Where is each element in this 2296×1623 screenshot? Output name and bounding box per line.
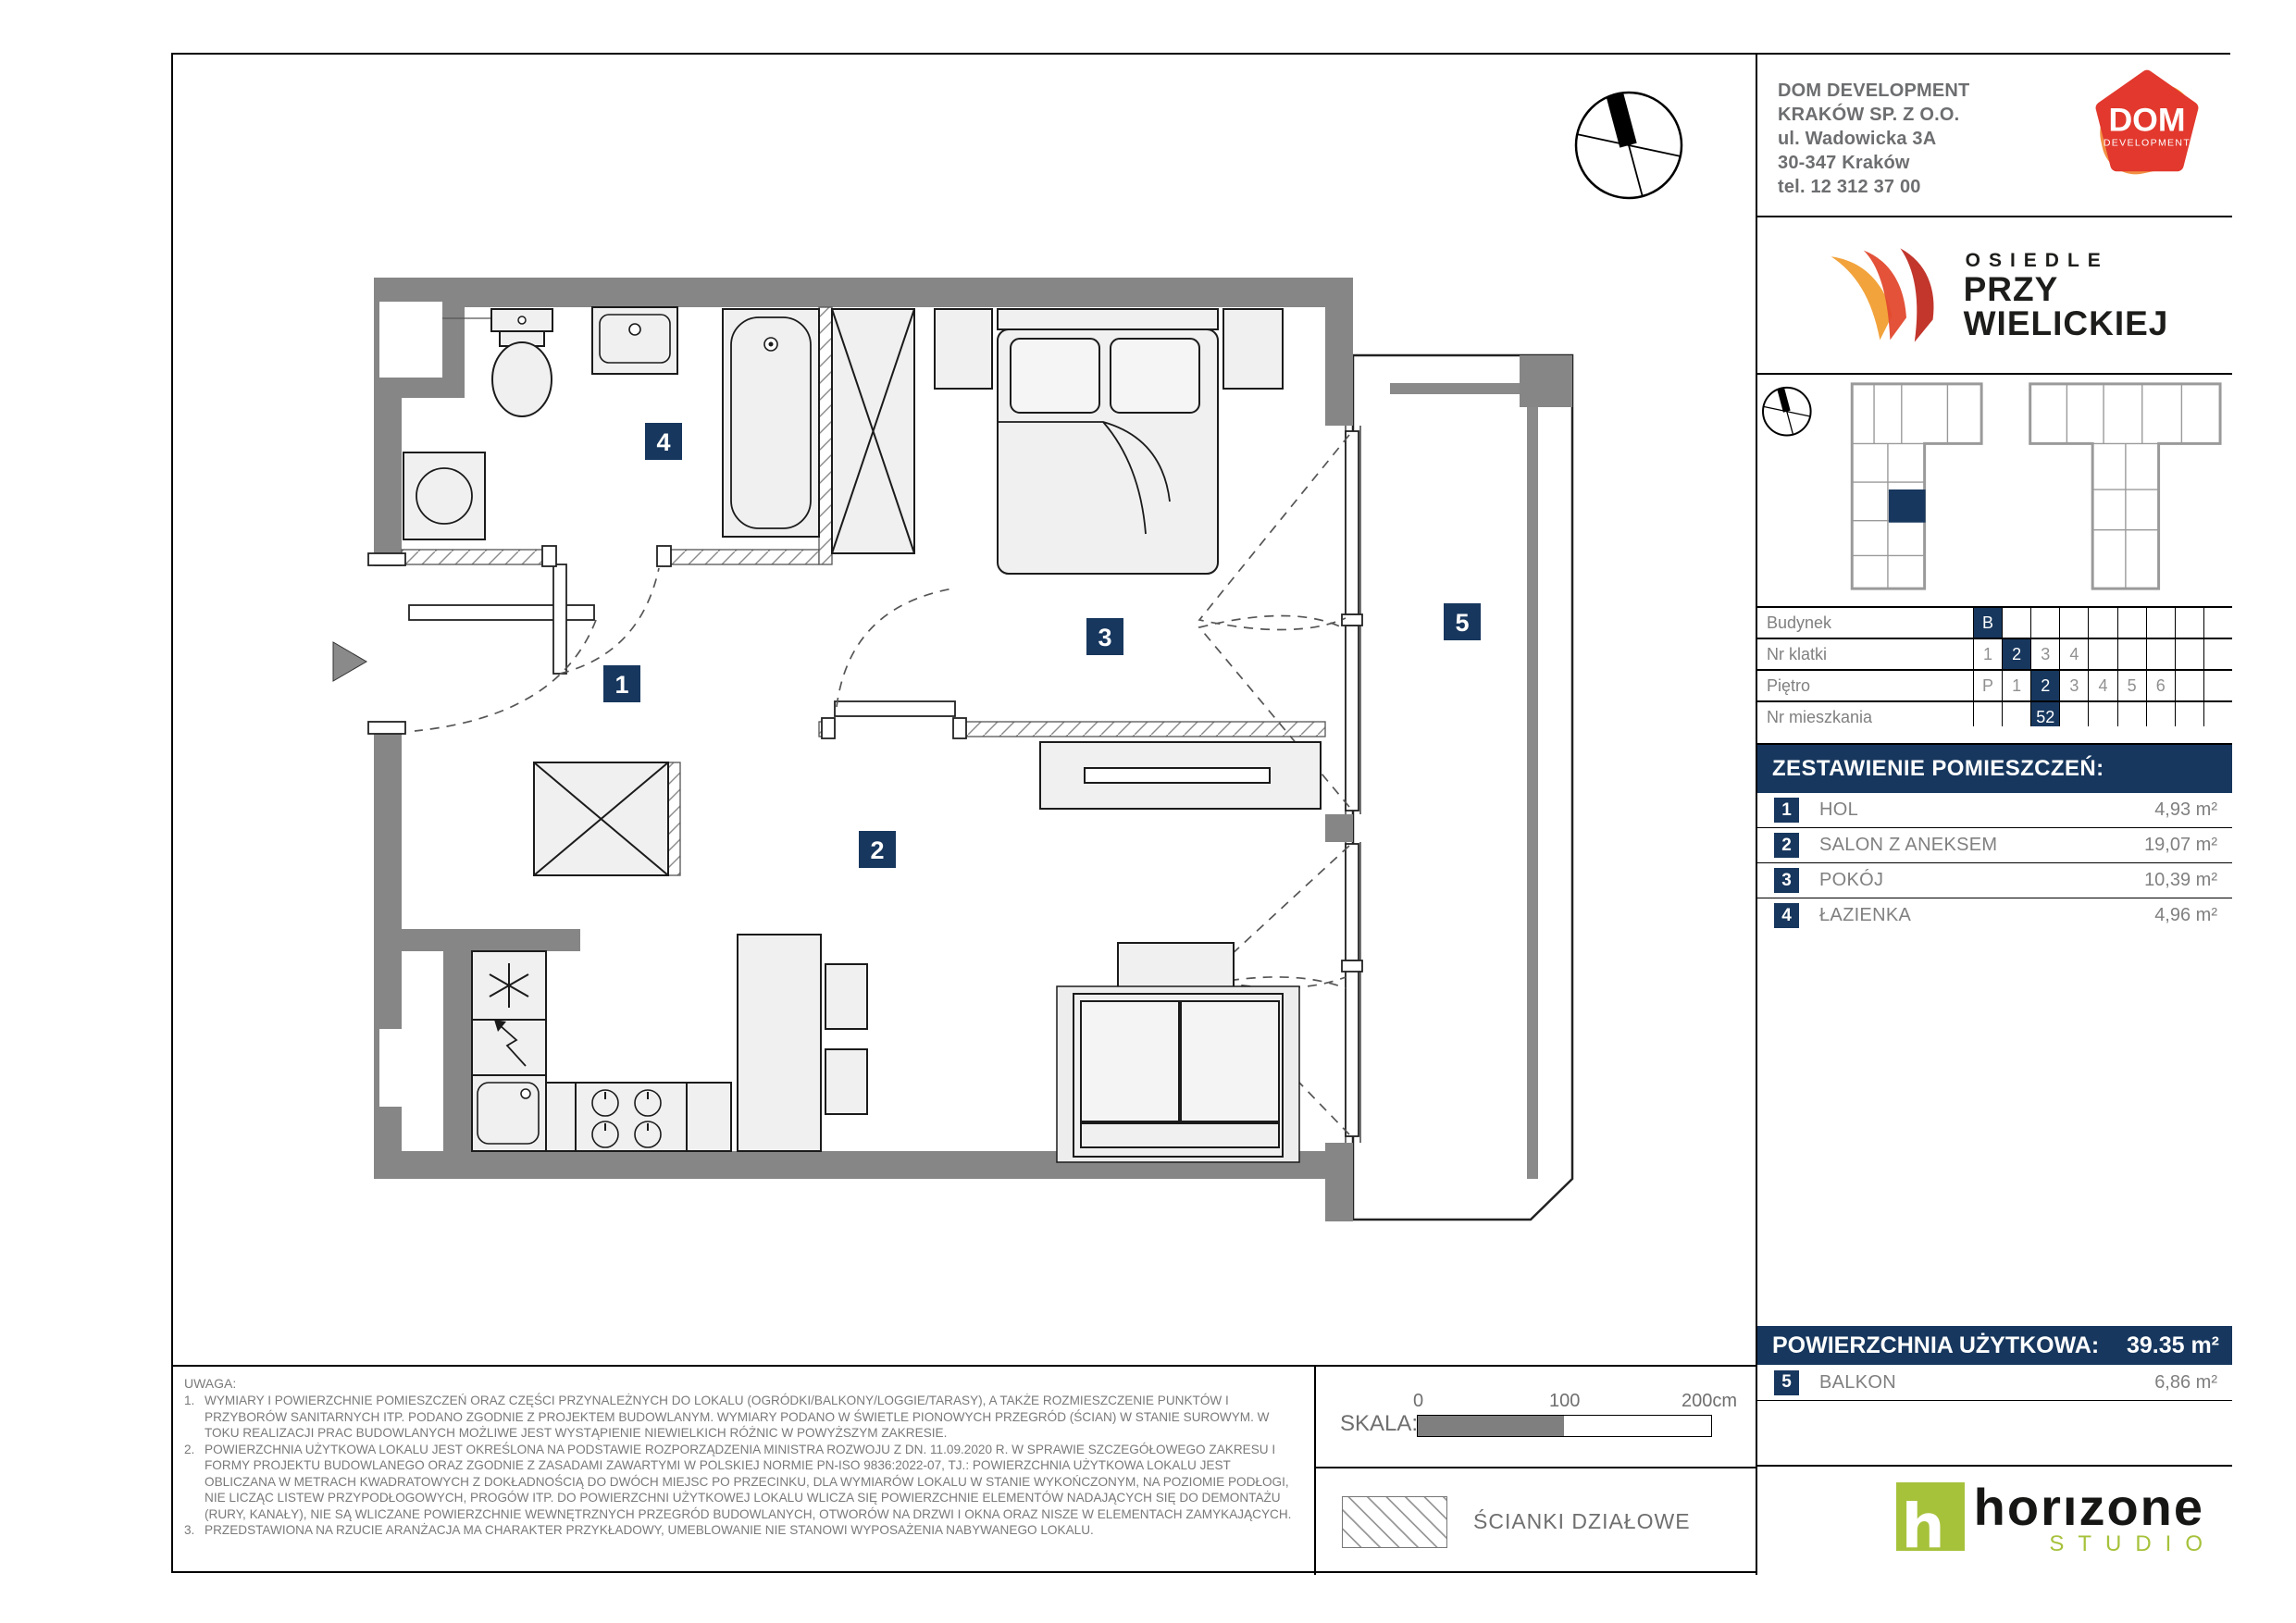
cell — [2030, 608, 2059, 638]
building-location-map — [1757, 375, 2232, 608]
svg-text:DEVELOPMENT: DEVELOPMENT — [2104, 137, 2191, 148]
cell — [2203, 671, 2232, 700]
cell: 1 — [2002, 671, 2030, 700]
wardrobe-bathroom — [832, 309, 914, 553]
estate-line2: PRZY — [1964, 272, 2169, 306]
room-number-badge: 1 — [1774, 798, 1799, 823]
cell: 4 — [2059, 639, 2088, 669]
rooms-list: 1 HOL 4,93 m² 2 SALON Z ANEKSEM 19,07 m²… — [1757, 793, 2232, 930]
estate-logo-text: OSIEDLE PRZY WIELICKIEJ — [1964, 250, 2169, 341]
scale-tick-100: 100 — [1549, 1391, 1580, 1412]
scale-bar-empty — [1564, 1415, 1712, 1437]
cell: 1 — [1973, 639, 2002, 669]
studio-name: horızone — [1974, 1483, 2204, 1531]
legend-box: ŚCIANKI DZIAŁOWE — [1314, 1467, 1756, 1575]
note-text: WYMIARY I POWIERZCHNIE POMIESZCZEŃ ORAZ … — [205, 1393, 1299, 1442]
bathtub — [723, 309, 819, 537]
location-table: Budynek B Nr klatki 1 2 3 4 — [1757, 608, 2232, 726]
kitchen-fridge — [472, 951, 546, 1020]
room-name: ŁAZIENKA — [1819, 905, 2154, 926]
room-row-hol: 1 HOL 4,93 m² — [1757, 793, 2232, 828]
cell: 3 — [2030, 639, 2059, 669]
badge-balkon: 5 — [1455, 609, 1469, 637]
row-label: Piętro — [1757, 671, 1973, 700]
partition-hatch-swatch — [1342, 1496, 1447, 1548]
cell — [2002, 608, 2030, 638]
partition-legend-label: ŚCIANKI DZIAŁOWE — [1473, 1509, 1691, 1534]
row-label: Nr klatki — [1757, 639, 1973, 669]
cell — [2088, 639, 2116, 669]
cell — [2175, 608, 2203, 638]
bed — [935, 309, 1283, 574]
table-row-klatka: Nr klatki 1 2 3 4 — [1757, 639, 2232, 671]
sheet-border: 1 2 3 4 5 DOM DEVELOPMENT KRAKÓW SP. Z O… — [171, 53, 2230, 1573]
note-number: 1. — [184, 1393, 205, 1442]
scale-bar-box: SKALA: 0 100 200cm — [1314, 1365, 1756, 1467]
cell: 4 — [2088, 671, 2116, 700]
scale-label: SKALA: — [1340, 1411, 1418, 1437]
washing-machine — [403, 452, 485, 539]
room-name: HOL — [1819, 799, 2154, 821]
note-item: 2. POWIERZCHNIA UŻYTKOWA LOKALU JEST OKR… — [184, 1442, 1299, 1523]
cell — [2175, 671, 2203, 700]
spacer — [1757, 726, 2232, 745]
svg-text:DOM: DOM — [2108, 102, 2185, 139]
studio-subtitle: STUDIO — [2049, 1531, 2216, 1557]
cell — [2088, 608, 2116, 638]
north-compass-icon — [1576, 93, 1682, 199]
room-area: 6,86 m² — [2154, 1372, 2232, 1394]
cell — [2117, 639, 2146, 669]
estate-line1: OSIEDLE — [1966, 250, 2169, 272]
note-number: 3. — [184, 1522, 205, 1539]
scale-bar-filled — [1417, 1415, 1566, 1437]
cell — [2117, 608, 2146, 638]
wardrobe-hall — [534, 762, 668, 875]
note-text: POWIERZCHNIA UŻYTKOWA LOKALU JEST OKREŚL… — [205, 1442, 1299, 1523]
cell — [2175, 639, 2203, 669]
note-number: 2. — [184, 1442, 205, 1523]
estate-line3: WIELICKIEJ — [1964, 306, 2169, 341]
kitchen-sink — [472, 1075, 546, 1151]
room-area: 4,96 m² — [2154, 905, 2232, 926]
table-row-budynek: Budynek B — [1757, 608, 2232, 639]
dom-development-logo: DOM DEVELOPMENT — [2086, 68, 2208, 190]
note-text: PRZEDSTAWIONA NA RZUCIE ARANŻACJA MA CHA… — [205, 1522, 1299, 1539]
cell — [2146, 639, 2175, 669]
mini-compass-icon — [1763, 388, 1811, 436]
cell: 6 — [2146, 671, 2175, 700]
cell: 2 — [2030, 671, 2059, 700]
balcony — [1353, 355, 1572, 1220]
chair — [825, 1049, 867, 1114]
usable-area-value: 39.35 m² — [2127, 1332, 2232, 1359]
cell: 5 — [2117, 671, 2146, 700]
wall-niche-bottom — [379, 1029, 435, 1107]
cell: 2 — [2002, 639, 2030, 669]
estate-logo-mark — [1821, 244, 1951, 346]
empty-area — [1757, 1401, 2232, 1467]
cell: P — [1973, 671, 2002, 700]
cell — [2203, 639, 2232, 669]
balcony-row: 5 BALKON 6,86 m² — [1757, 1365, 2232, 1401]
rooms-header: ZESTAWIENIE POMIESZCZEŃ: — [1757, 745, 2232, 793]
horizone-logo-icon: h — [1896, 1482, 1965, 1551]
room-number-badge: 2 — [1774, 833, 1799, 858]
room-row-lazienka: 4 ŁAZIENKA 4,96 m² — [1757, 898, 2232, 934]
scale-tick-200: 200cm — [1682, 1391, 1737, 1412]
cell: 3 — [2059, 671, 2088, 700]
cell — [2146, 608, 2175, 638]
floorplan-sheet: { "company": { "lines": ["DOM DEVELOPMEN… — [0, 0, 2296, 1623]
washbasin — [592, 307, 677, 374]
room-number-badge: 4 — [1774, 903, 1799, 928]
chair — [825, 964, 867, 1029]
cell: B — [1973, 608, 2002, 638]
room-number-badge: 3 — [1774, 868, 1799, 893]
note-item: 3. PRZEDSTAWIONA NA RZUCIE ARANŻACJA MA … — [184, 1522, 1299, 1539]
room-area: 19,07 m² — [2144, 835, 2232, 856]
kitchen-island — [738, 935, 821, 1151]
cell — [2059, 608, 2088, 638]
usable-area-band: POWIERZCHNIA UŻYTKOWA: 39.35 m² — [1757, 1326, 2232, 1365]
badge-pokoj: 3 — [1098, 624, 1111, 651]
room-name: POKÓJ — [1819, 870, 2144, 891]
sofa — [1057, 986, 1299, 1162]
room-row-salon: 2 SALON Z ANEKSEM 19,07 m² — [1757, 828, 2232, 863]
studio-logo: h horızone STUDIO — [1757, 1467, 2232, 1573]
apartment-highlight — [1889, 489, 1926, 523]
badge-salon: 2 — [870, 836, 884, 864]
stove — [576, 1083, 687, 1151]
wall-niche-top — [379, 302, 442, 378]
kitchen-appliance — [472, 1020, 546, 1075]
room-name: BALKON — [1819, 1372, 2154, 1394]
row-label: Budynek — [1757, 608, 1973, 638]
notes-block: UWAGA: 1. WYMIARY I POWIERZCHNIE POMIESZ… — [173, 1365, 1314, 1575]
scale-tick-0: 0 — [1413, 1391, 1423, 1412]
building-outline-left — [1852, 384, 1981, 588]
entrance-arrow-icon — [333, 642, 366, 681]
floor-plan: 1 2 3 4 5 — [173, 55, 1756, 1365]
usable-area-label: POWIERZCHNIA UŻYTKOWA: — [1757, 1332, 2127, 1359]
table-row-pietro: Piętro P 1 2 3 4 5 6 — [1757, 671, 2232, 702]
info-panel: DOM DEVELOPMENT KRAKÓW SP. Z O.O. ul. Wa… — [1756, 55, 2232, 1575]
notes-title: UWAGA: — [184, 1376, 1299, 1391]
empty-area — [1757, 930, 2232, 1326]
room-name: SALON Z ANEKSEM — [1819, 835, 2144, 856]
badge-lazienka: 4 — [656, 428, 670, 456]
note-item: 1. WYMIARY I POWIERZCHNIE POMIESZCZEŃ OR… — [184, 1393, 1299, 1442]
cell — [2203, 608, 2232, 638]
room-area: 10,39 m² — [2144, 870, 2232, 891]
room-number-badge: 5 — [1774, 1370, 1799, 1395]
estate-logo: OSIEDLE PRZY WIELICKIEJ — [1757, 217, 2232, 375]
developer-info: DOM DEVELOPMENT KRAKÓW SP. Z O.O. ul. Wa… — [1757, 55, 2232, 217]
tv-cabinet — [1040, 742, 1321, 809]
badge-hol: 1 — [614, 671, 628, 699]
room-row-pokoj: 3 POKÓJ 10,39 m² — [1757, 863, 2232, 898]
toilet — [491, 309, 552, 416]
building-outline-right — [2030, 384, 2220, 588]
room-area: 4,93 m² — [2154, 799, 2232, 821]
